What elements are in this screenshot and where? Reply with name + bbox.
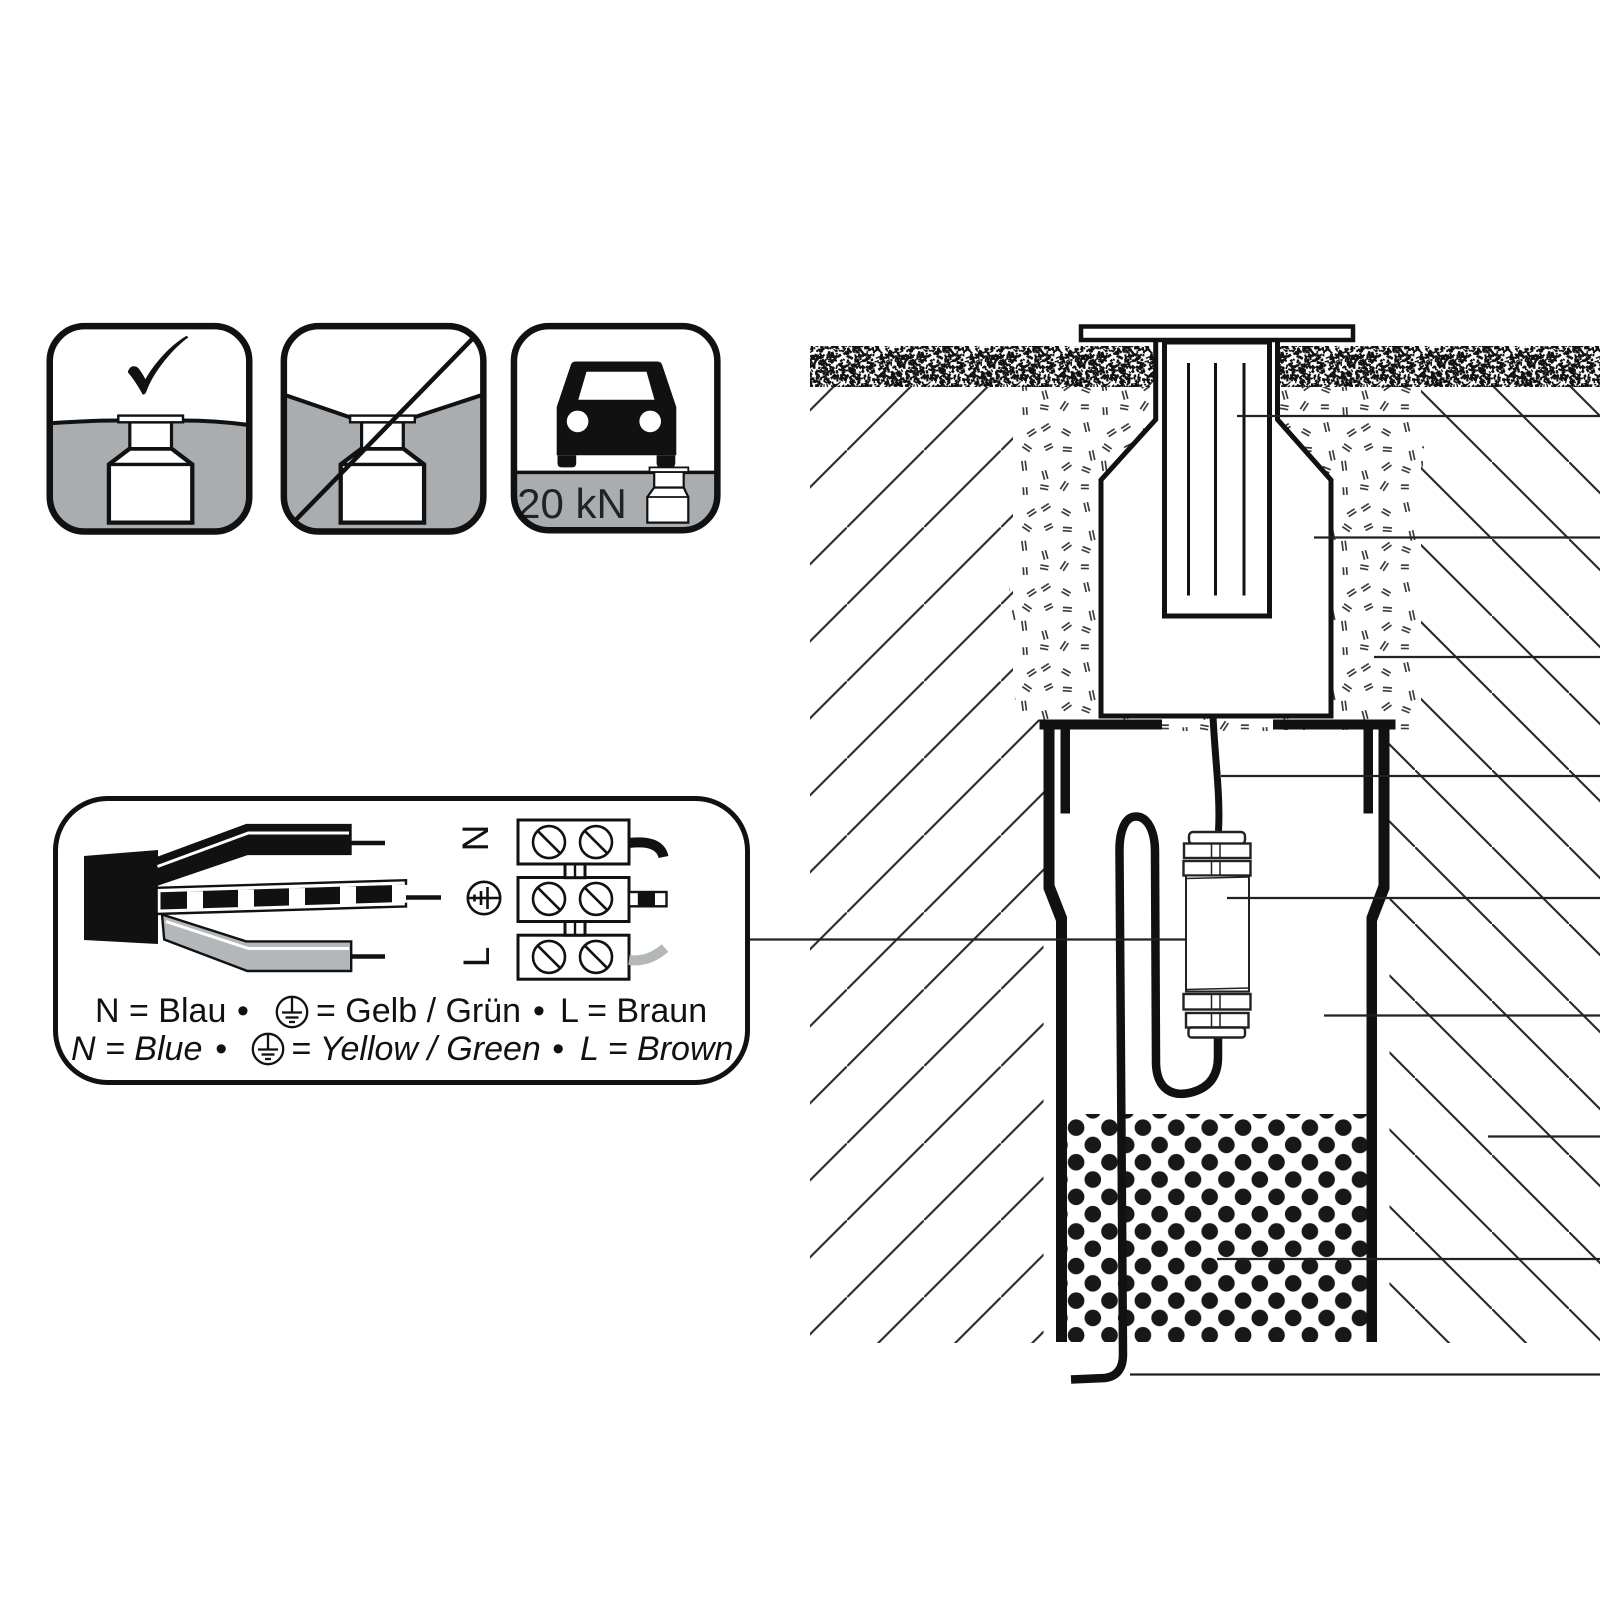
svg-text:•: • (533, 992, 545, 1030)
svg-text:L: L (456, 947, 497, 968)
svg-text:N = Blue: N = Blue (71, 1030, 202, 1068)
svg-text:•: • (237, 992, 249, 1030)
svg-text:= Gelb / Grün: = Gelb / Grün (316, 992, 521, 1030)
svg-text:N = Blau: N = Blau (95, 992, 226, 1030)
svg-text:L = Brown: L = Brown (580, 1030, 733, 1068)
svg-text:= Yellow / Green: = Yellow / Green (291, 1030, 541, 1068)
svg-text:20 kN: 20 kN (517, 480, 627, 527)
svg-text:•: • (215, 1030, 227, 1068)
svg-text:L = Braun: L = Braun (560, 992, 707, 1030)
svg-text:N: N (455, 825, 496, 852)
svg-text:•: • (552, 1030, 564, 1068)
